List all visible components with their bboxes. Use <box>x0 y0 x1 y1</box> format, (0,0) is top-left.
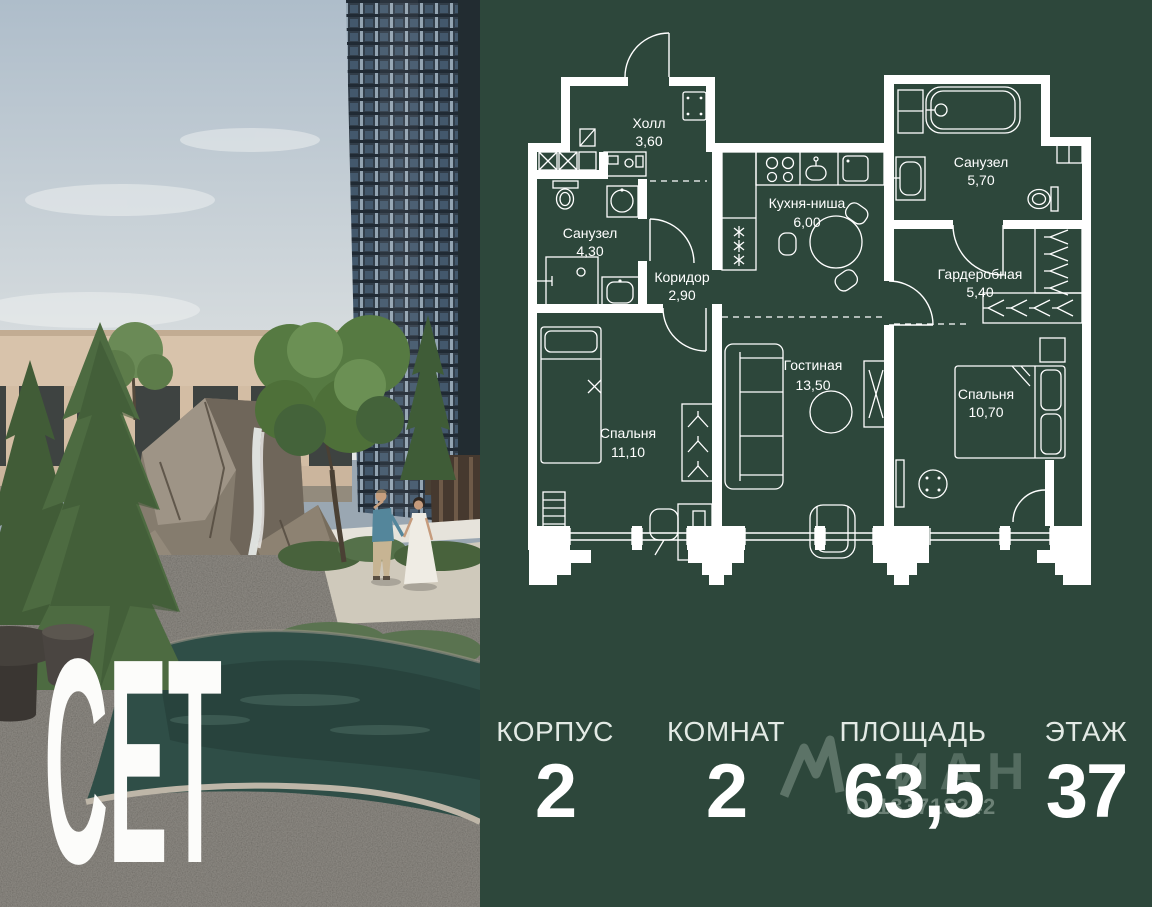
stat-korpus-value: 2 <box>496 754 614 830</box>
stat-ploshchad: ПЛОЩАДЬ 63,5 <box>840 716 987 830</box>
stat-etazh-label: ЭТАЖ <box>1045 716 1128 748</box>
stat-komnat-label: КОМНАТ <box>667 716 785 748</box>
stat-korpus-label: КОРПУС <box>496 716 614 748</box>
listing-stats: КОРПУС 2 КОМНАТ 2 ПЛОЩАДЬ 63,5 ЭТАЖ 37 <box>480 0 1152 907</box>
stat-ploshchad-value: 63,5 <box>840 754 987 830</box>
listing-image: СЕТ <box>0 0 1152 907</box>
stat-komnat-value: 2 <box>667 754 785 830</box>
photo-scene: СЕТ <box>0 0 480 907</box>
brand-logo: СЕТ <box>44 598 222 907</box>
stat-etazh-value: 37 <box>1045 754 1128 830</box>
photo-building-exterior: СЕТ <box>0 0 480 907</box>
stat-ploshchad-label: ПЛОЩАДЬ <box>840 716 987 748</box>
listing-panel: Холл 3,60 Санузел 4,30 Коридор 2,90 Кухн… <box>480 0 1152 907</box>
stat-komnat: КОМНАТ 2 <box>667 716 785 830</box>
stat-etazh: ЭТАЖ 37 <box>1045 716 1128 830</box>
stat-korpus: КОРПУС 2 <box>496 716 614 830</box>
